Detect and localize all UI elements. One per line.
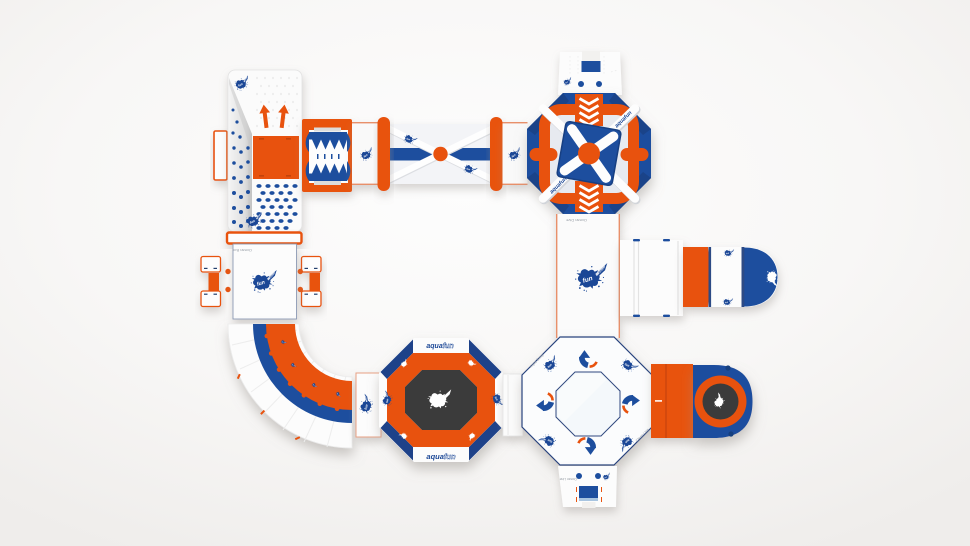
svg-text:Ocean Box: Ocean Box [232,248,252,253]
svg-text:aquafun: aquafun [426,343,453,350]
svg-text:Ocean Dive: Ocean Dive [565,218,587,223]
svg-text:Ocean Line: Ocean Line [560,477,577,481]
svg-text:aquafun: aquafun [426,452,456,461]
